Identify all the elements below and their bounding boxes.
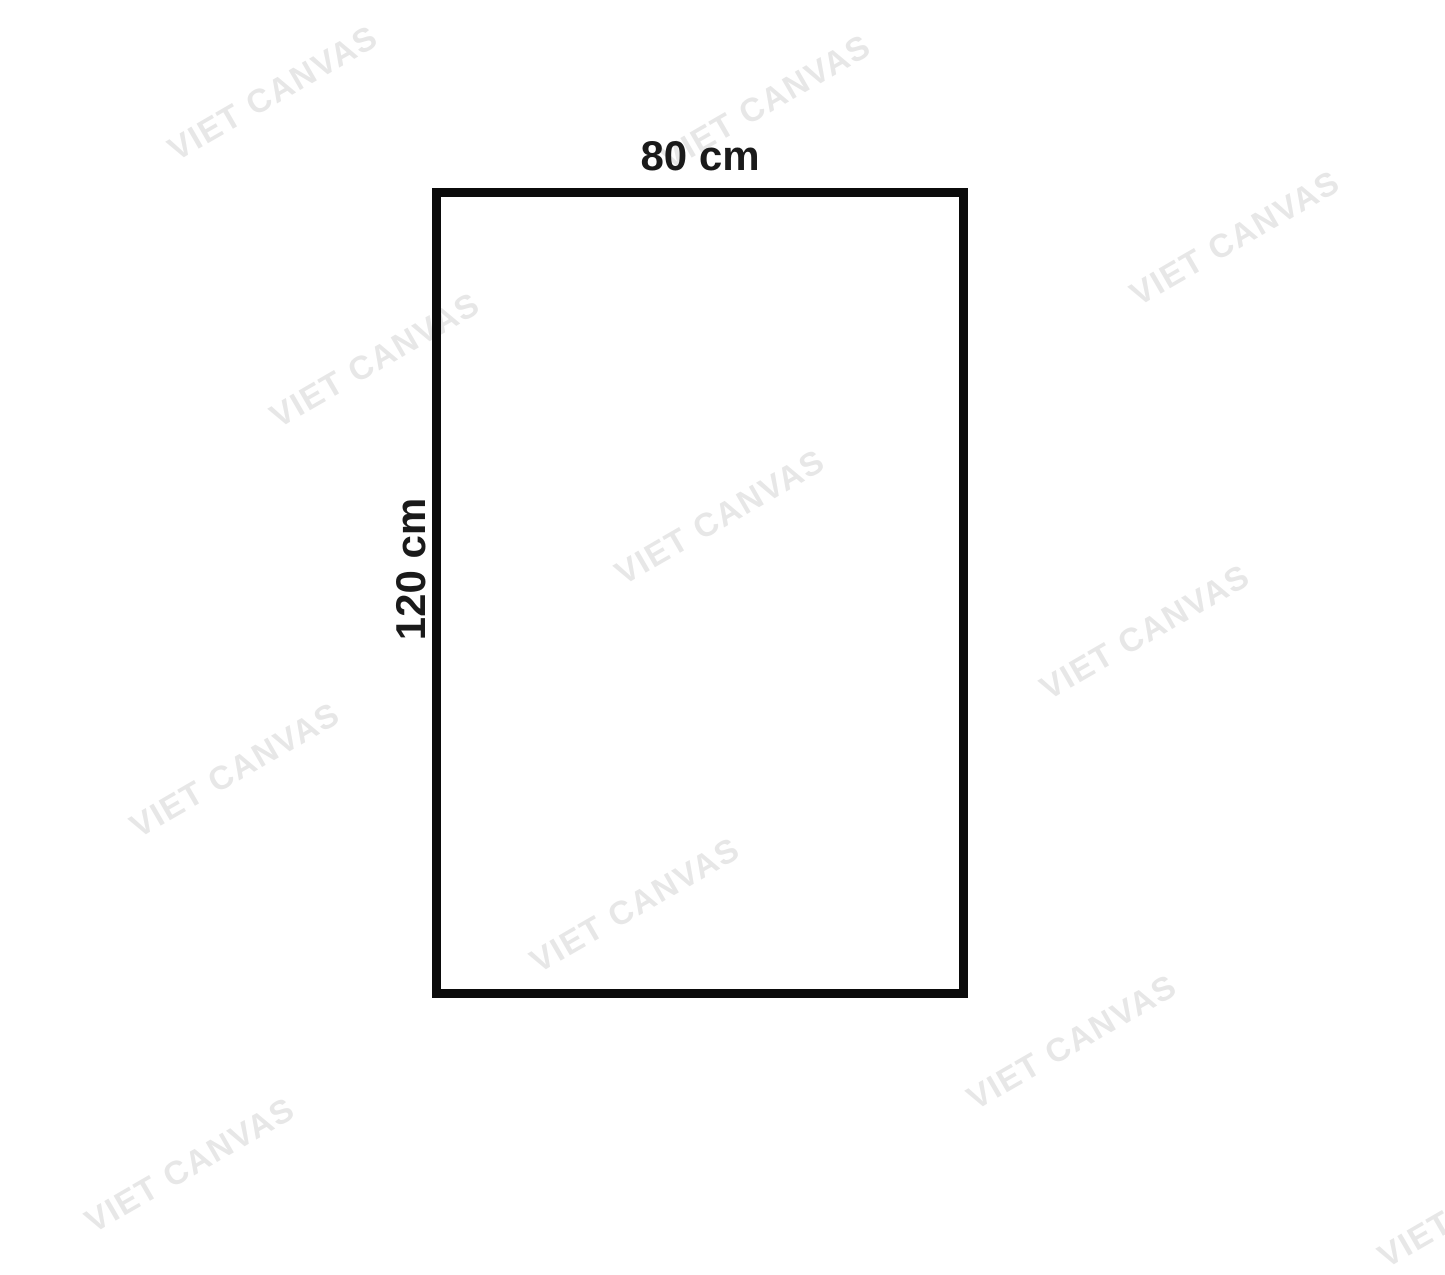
watermark: VIET CANVAS [161, 18, 384, 169]
watermark: VIET CANVAS [78, 1090, 301, 1241]
watermark: VIET CANVAS [123, 695, 346, 846]
watermark: VIET CANVAS [1123, 163, 1346, 314]
width-dimension-label: 80 cm [432, 134, 968, 178]
height-dimension-label: 120 cm [387, 498, 435, 640]
watermark: VIET CANVAS [1033, 557, 1256, 708]
watermark: VIET CANVAS [960, 967, 1183, 1118]
dimension-rectangle [432, 188, 968, 998]
watermark: VIET CANVAS [1371, 1125, 1445, 1275]
canvas-size-diagram: { "diagram": { "width_label": "80 cm", "… [0, 0, 1445, 1156]
